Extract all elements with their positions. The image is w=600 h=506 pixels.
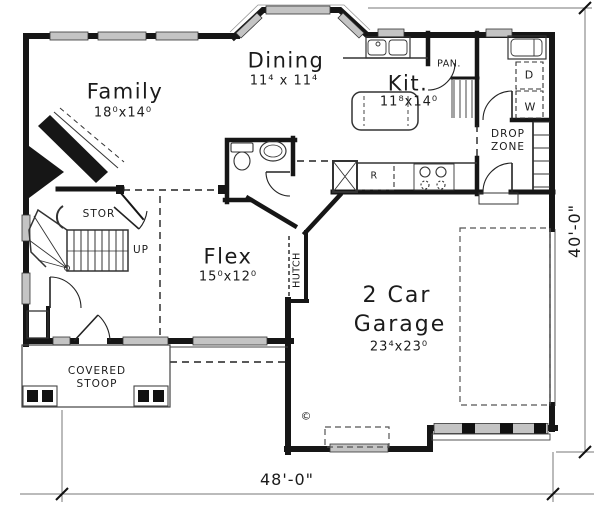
stair-rail-curve [57, 206, 63, 228]
room-dims-kitchen: 11⁸x14⁰ [380, 96, 438, 109]
covered-stoop [22, 345, 288, 407]
dimension-width: 48'-0" [260, 472, 314, 488]
up-label: UP [133, 245, 149, 256]
room-label-flex: Flex [204, 247, 253, 268]
hutch-label: HUTCH [292, 252, 302, 288]
kitchen-window [378, 29, 404, 37]
bathroom-fixtures [231, 141, 286, 170]
toilet-tank [231, 143, 253, 152]
room-label-garage-line1: 2 Car [363, 285, 432, 307]
garage-window [330, 444, 388, 452]
floor-plan: Family 18⁰x14⁰ Dining 11⁴ x 11⁴ Kit. 11⁸… [0, 0, 600, 506]
garage-door [432, 423, 550, 440]
room-dims-dining: 11⁴ x 11⁴ [250, 75, 318, 88]
room-dims-family: 18⁰x14⁰ [94, 107, 152, 120]
refrigerator-label: R [370, 171, 377, 181]
pantry-shelves [452, 78, 472, 118]
drop-zone-label-1: DROP [491, 129, 525, 140]
copyright-mark: © [301, 411, 312, 422]
garage-dashed-areas [325, 228, 550, 447]
garage-right-wall [550, 229, 555, 406]
room-label-family: Family [87, 82, 164, 103]
stoop-label-1: COVERED [68, 366, 126, 377]
toilet-bowl [234, 152, 250, 170]
bay-window-left [236, 13, 262, 38]
range [414, 164, 454, 190]
bay-window-center [266, 6, 330, 14]
washer-label: W [525, 102, 536, 113]
room-label-kitchen: Kit. [388, 74, 429, 95]
room-label-garage-line2: Garage [354, 314, 447, 336]
storage-label: STOR [83, 209, 116, 220]
dryer-label: D [525, 70, 533, 81]
fireplace [29, 108, 124, 198]
drop-zone-label-2: ZONE [491, 142, 525, 153]
garage-step [479, 193, 518, 204]
room-dims-garage: 23⁴x23⁰ [370, 341, 428, 354]
room-dims-flex: 15⁰x12⁰ [199, 271, 257, 284]
pantry-label: PAN. [437, 59, 461, 69]
foyer-closet [27, 311, 48, 338]
dimension-depth: 40'-0" [567, 204, 583, 258]
room-label-dining: Dining [248, 51, 325, 72]
flex-window [193, 337, 267, 345]
stoop-label-2: STOOP [77, 379, 118, 390]
